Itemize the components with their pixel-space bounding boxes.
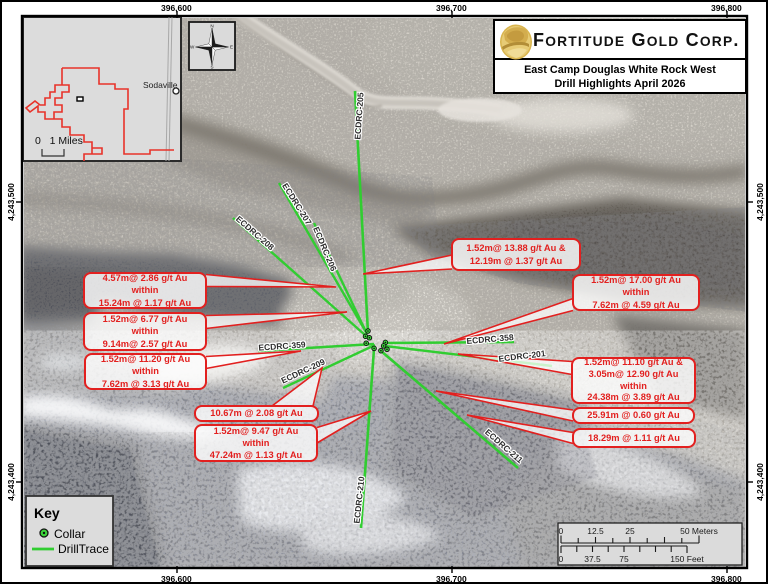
svg-text:Key: Key — [34, 505, 60, 521]
svg-text:12.5: 12.5 — [587, 526, 604, 536]
svg-text:N: N — [210, 24, 213, 29]
svg-text:S: S — [210, 65, 213, 70]
svg-text:25: 25 — [625, 526, 635, 536]
svg-text:DrillTrace: DrillTrace — [58, 542, 109, 556]
svg-text:0: 0 — [559, 554, 564, 564]
svg-text:50 Meters: 50 Meters — [680, 526, 718, 536]
svg-text:Collar: Collar — [54, 527, 85, 541]
svg-text:150 Feet: 150 Feet — [670, 554, 704, 564]
svg-text:W: W — [190, 45, 195, 50]
svg-text:37.5: 37.5 — [584, 554, 601, 564]
svg-text:75: 75 — [619, 554, 629, 564]
svg-text:0: 0 — [559, 526, 564, 536]
svg-text:E: E — [230, 45, 233, 50]
